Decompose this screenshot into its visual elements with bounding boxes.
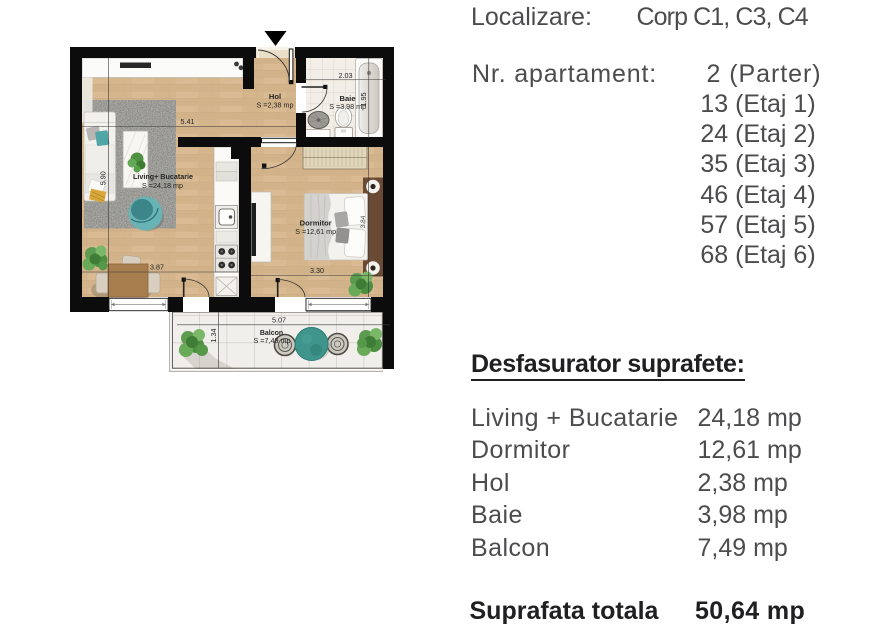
svg-text:Living+ Bucatarie: Living+ Bucatarie xyxy=(133,172,193,181)
svg-text:S =2,38 mp: S =2,38 mp xyxy=(257,100,294,109)
svg-text:S =7,49 mp: S =7,49 mp xyxy=(254,336,291,345)
svg-text:3.30: 3.30 xyxy=(310,266,324,275)
svg-text:5.41: 5.41 xyxy=(181,117,195,126)
svg-text:S =24,18 mp: S =24,18 mp xyxy=(142,181,183,190)
svg-text:3.84: 3.84 xyxy=(360,215,367,228)
svg-text:5.90: 5.90 xyxy=(98,171,107,185)
svg-text:3.87: 3.87 xyxy=(150,263,164,272)
svg-text:5.07: 5.07 xyxy=(272,316,286,325)
svg-text:1.95: 1.95 xyxy=(359,93,368,107)
svg-text:2.03: 2.03 xyxy=(339,71,353,80)
svg-text:1.34: 1.34 xyxy=(209,329,218,343)
svg-text:S =12,61 mp: S =12,61 mp xyxy=(295,227,336,236)
